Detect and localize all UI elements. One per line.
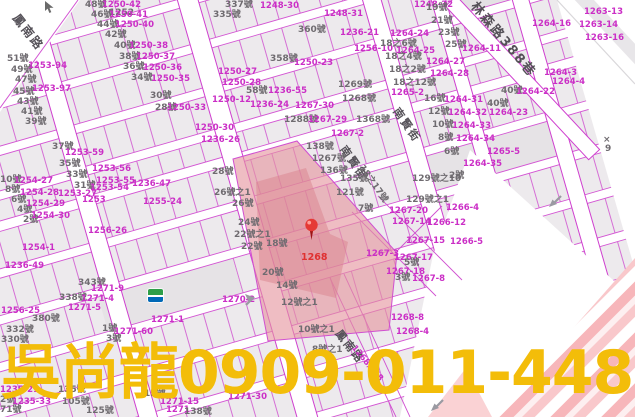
map-label: 1267-14 (392, 218, 431, 227)
map-label: 2號 (449, 172, 464, 181)
map-label: 1264-35 (463, 160, 502, 169)
map-label: 18之2號 (389, 66, 426, 75)
map-label: 1號 (102, 325, 117, 334)
map-label: 1256-25 (1, 307, 40, 316)
map-label: 25號 (445, 41, 467, 50)
map-label: 129號之10 (412, 175, 461, 184)
map-label: 1254-28 (20, 189, 59, 198)
map-label: 1267-18 (386, 268, 425, 277)
map-label: 2號 (23, 216, 38, 225)
map-label: 1248-32 (414, 1, 453, 10)
map-label: 1253-59 (65, 149, 104, 158)
map-label: 1248-31 (324, 10, 363, 19)
map-label: 1264-31 (444, 96, 483, 105)
map-label: 358號 (270, 55, 298, 64)
map-label: 28號 (155, 104, 177, 113)
map-label: 1263-16 (585, 34, 624, 43)
map-label: 380號 (32, 315, 60, 324)
map-label: 1263-13 (584, 8, 623, 17)
map-label: 1263-14 (579, 21, 618, 30)
map-label: 33號 (66, 171, 88, 180)
map-label: 1267-8 (412, 275, 445, 284)
map-label: 1236-55 (268, 87, 307, 96)
map-label: 332號 (6, 326, 34, 335)
map-label: 1250-41 (109, 11, 148, 20)
map-label: 335號 (213, 11, 241, 20)
map-label: 1236-47 (132, 180, 171, 189)
map-label: 28號 (212, 168, 234, 177)
map-label: 3號 (395, 274, 410, 283)
map-label: 1250-33 (167, 104, 206, 113)
map-label: 1267-17 (394, 254, 433, 263)
map-label: 4號 (17, 206, 32, 215)
map-label: 1250-36 (143, 64, 182, 73)
map-label: 7號 (358, 205, 373, 214)
map-label: 1250-38 (129, 42, 168, 51)
map-label: 5號 (404, 259, 419, 268)
map-label: 1236-26 (201, 136, 240, 145)
map-label: 1236-24 (250, 101, 289, 110)
map-label: 1267-29 (308, 116, 347, 125)
map-label: 1268號 (342, 95, 376, 104)
map-label: 1236-21 (340, 29, 379, 38)
map-label: 138號 (184, 408, 212, 417)
map-label: 10號 (432, 121, 454, 130)
map-label: 1250-23 (294, 59, 333, 68)
map-label: 1267-2 (331, 130, 364, 139)
map-label: 18之17號 (357, 164, 389, 204)
map-label: 125號 (86, 407, 114, 416)
map-label: 19號 (426, 4, 448, 13)
map-label: 8號 (438, 134, 453, 143)
map-label: 1264-22 (516, 88, 555, 97)
map-label: 22號 (241, 243, 263, 252)
map-label: 24號 (238, 219, 260, 228)
map-label: × (603, 136, 611, 145)
agent-phone: 0909-011-448 (178, 338, 633, 408)
map-label: 36號 (123, 63, 145, 72)
map-label: 136號 (320, 167, 348, 176)
map-label: 58號 (246, 87, 268, 96)
map-label: 1250-30 (195, 124, 234, 133)
direction-arrow-nw-icon (242, 291, 260, 309)
map-label: 129號之1 (406, 196, 449, 205)
map-label: 31號 (74, 182, 96, 191)
map-label: 337號 (225, 1, 253, 10)
mouse-cursor-icon (44, 1, 55, 14)
map-label: 1266-12 (427, 219, 466, 228)
map-label: 1250-37 (136, 53, 175, 62)
map-label: 43號 (17, 98, 39, 107)
map-label: 1250-40 (115, 21, 154, 30)
map-label: 18之4號 (385, 53, 422, 62)
map-label: 1256-26 (88, 227, 127, 236)
street-name-label: 林森路388巷 (468, 0, 538, 80)
map-label: 1254-29 (26, 200, 65, 209)
map-label: 35號 (59, 160, 81, 169)
map-label: 1253-56 (92, 165, 131, 174)
map-label: 1271-9 (91, 285, 124, 294)
map-label: 1250-42 (102, 1, 141, 10)
map-label: 38號 (119, 53, 141, 62)
map-label: 1264-27 (426, 58, 465, 67)
map-label: 1264-11 (462, 45, 501, 54)
map-label: 12號之1 (281, 299, 318, 308)
street-name-label: 鳳南路 (11, 12, 46, 52)
map-label: 1271-4 (81, 295, 114, 304)
map-label: 16號 (424, 95, 446, 104)
map-label: 30號 (150, 92, 172, 101)
map-label: 1267-3 (366, 250, 399, 259)
map-label: 1252 (109, 9, 134, 18)
map-label: 10號 (0, 176, 22, 185)
map-label: 360號 (298, 26, 326, 35)
map-label: 1253 (82, 196, 106, 205)
map-label: 41號 (21, 108, 43, 117)
map-label: 46號 (91, 11, 113, 20)
map-label: 1271-5 (68, 304, 101, 313)
map-label: 1265-2 (391, 89, 424, 98)
map-label: 1253-54 (90, 184, 129, 193)
map-label: 45號 (13, 88, 35, 97)
map-label: 1264-23 (489, 109, 528, 118)
map-label: 9 (605, 145, 611, 154)
map-label: 34號 (131, 74, 153, 83)
direction-arrow-sw-icon (546, 192, 564, 210)
map-label: 18之12號 (393, 79, 436, 88)
map-label: 1266-5 (450, 238, 483, 247)
map-label: 21號 (431, 17, 453, 26)
map-label: 18號 (266, 240, 288, 249)
map-label: 18之6號 (380, 40, 417, 49)
map-label: 1264-32 (448, 109, 487, 118)
map-label: 121號 (336, 189, 364, 198)
map-label: 1255-24 (143, 198, 182, 207)
map-label: 48號 (85, 1, 107, 10)
map-label: 1236-49 (5, 262, 44, 271)
map-label: 1288號 (284, 116, 318, 125)
map-label: 1269號 (338, 81, 372, 90)
cadastral-map-canvas[interactable]: 鳳南路林森路388巷南賢街南賢街鳳南路18之17號1268之28125248號1… (0, 0, 635, 417)
street-name-label: 南賢街 (338, 144, 369, 182)
map-label: 1267-30 (295, 102, 334, 111)
map-label: 49號 (11, 66, 33, 75)
map-label: 40號 (501, 87, 523, 96)
map-label: 1264-24 (390, 30, 429, 39)
map-label: 44號 (97, 21, 119, 30)
map-label: 1267-15 (406, 237, 445, 246)
map-label: 1264-4 (552, 78, 585, 87)
map-label: 39號 (25, 118, 47, 127)
map-label: 1268-4 (396, 328, 429, 337)
map-label: 1253-27 (58, 190, 97, 199)
map-label: 12號 (428, 108, 450, 117)
map-label: 138號 (306, 143, 334, 152)
map-label: 1368號 (356, 116, 390, 125)
map-pin-icon[interactable] (303, 218, 320, 241)
map-label: 1250-28 (222, 79, 261, 88)
map-label: 26號之1 (214, 189, 251, 198)
map-label: 42號 (105, 31, 127, 40)
map-label: 22號之1 (234, 231, 271, 240)
map-label: 10號之1 (298, 326, 335, 335)
map-label: 1264-33 (452, 122, 491, 131)
map-label: 6號 (444, 148, 459, 157)
map-label: 1253-97 (32, 85, 71, 94)
map-label: 338號 (59, 294, 87, 303)
map-label: 1268 (301, 253, 327, 263)
agent-contact-overlay: 吳尚龍0909-011-448 (1, 343, 633, 403)
map-label: 14號 (276, 282, 298, 291)
map-label: 1250-27 (218, 68, 257, 77)
map-label: 343號 (78, 279, 106, 288)
map-label: 1268-8 (391, 314, 424, 323)
map-label: 1253-94 (28, 62, 67, 71)
map-label: 20號 (262, 269, 284, 278)
map-label: 1264-3 (544, 69, 577, 78)
street-name-label: 南賢街 (391, 106, 422, 144)
map-label: 1250-35 (151, 75, 190, 84)
map-label: 1267-20 (389, 207, 428, 216)
familymart-store-icon[interactable] (148, 289, 163, 302)
map-label: 1254-1 (22, 244, 55, 253)
map-label: 40號 (114, 42, 136, 51)
map-label: 47號 (15, 76, 37, 85)
map-label: 1254-27 (14, 177, 53, 186)
map-label: 1250-12 (212, 96, 251, 105)
map-label: 40號 (487, 100, 509, 109)
map-label: 37號 (52, 143, 74, 152)
agent-name: 吳尚龍 (1, 338, 178, 408)
map-label: 1271-60 (114, 328, 153, 337)
map-label: 8號 (5, 186, 20, 195)
map-label: 1256-10 (354, 45, 393, 54)
map-label: 1264-28 (430, 70, 469, 79)
map-label: 51號 (7, 55, 29, 64)
map-label: 1267號 (312, 155, 346, 164)
map-label: 1253-55 (96, 177, 135, 186)
map-label: 1264-16 (532, 20, 571, 29)
map-label: 1264-34 (456, 135, 495, 144)
map-label: 1254-30 (31, 212, 70, 221)
map-label: 1265-5 (487, 148, 520, 157)
map-label: 1266-4 (446, 204, 479, 213)
map-label: 6號 (11, 196, 26, 205)
map-label: 135號 (340, 175, 368, 184)
map-label: 1264-25 (396, 47, 435, 56)
map-label: 23號 (438, 29, 460, 38)
map-label: 26號 (232, 200, 254, 209)
map-label: 1248-30 (260, 2, 299, 11)
map-label: 1271-1 (151, 316, 184, 325)
